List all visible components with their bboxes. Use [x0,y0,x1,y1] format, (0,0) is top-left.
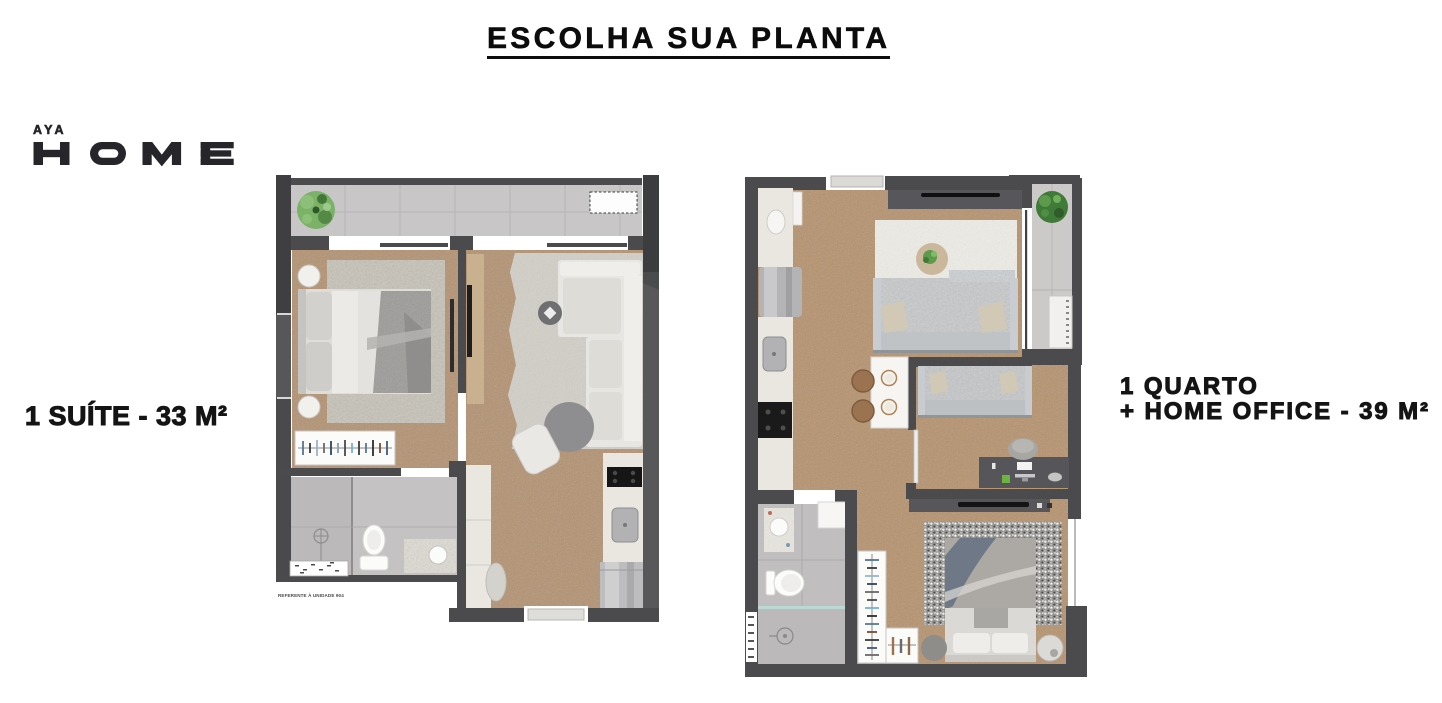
svg-text:REFERENTE À UNIDADE 904: REFERENTE À UNIDADE 904 [278,592,344,598]
